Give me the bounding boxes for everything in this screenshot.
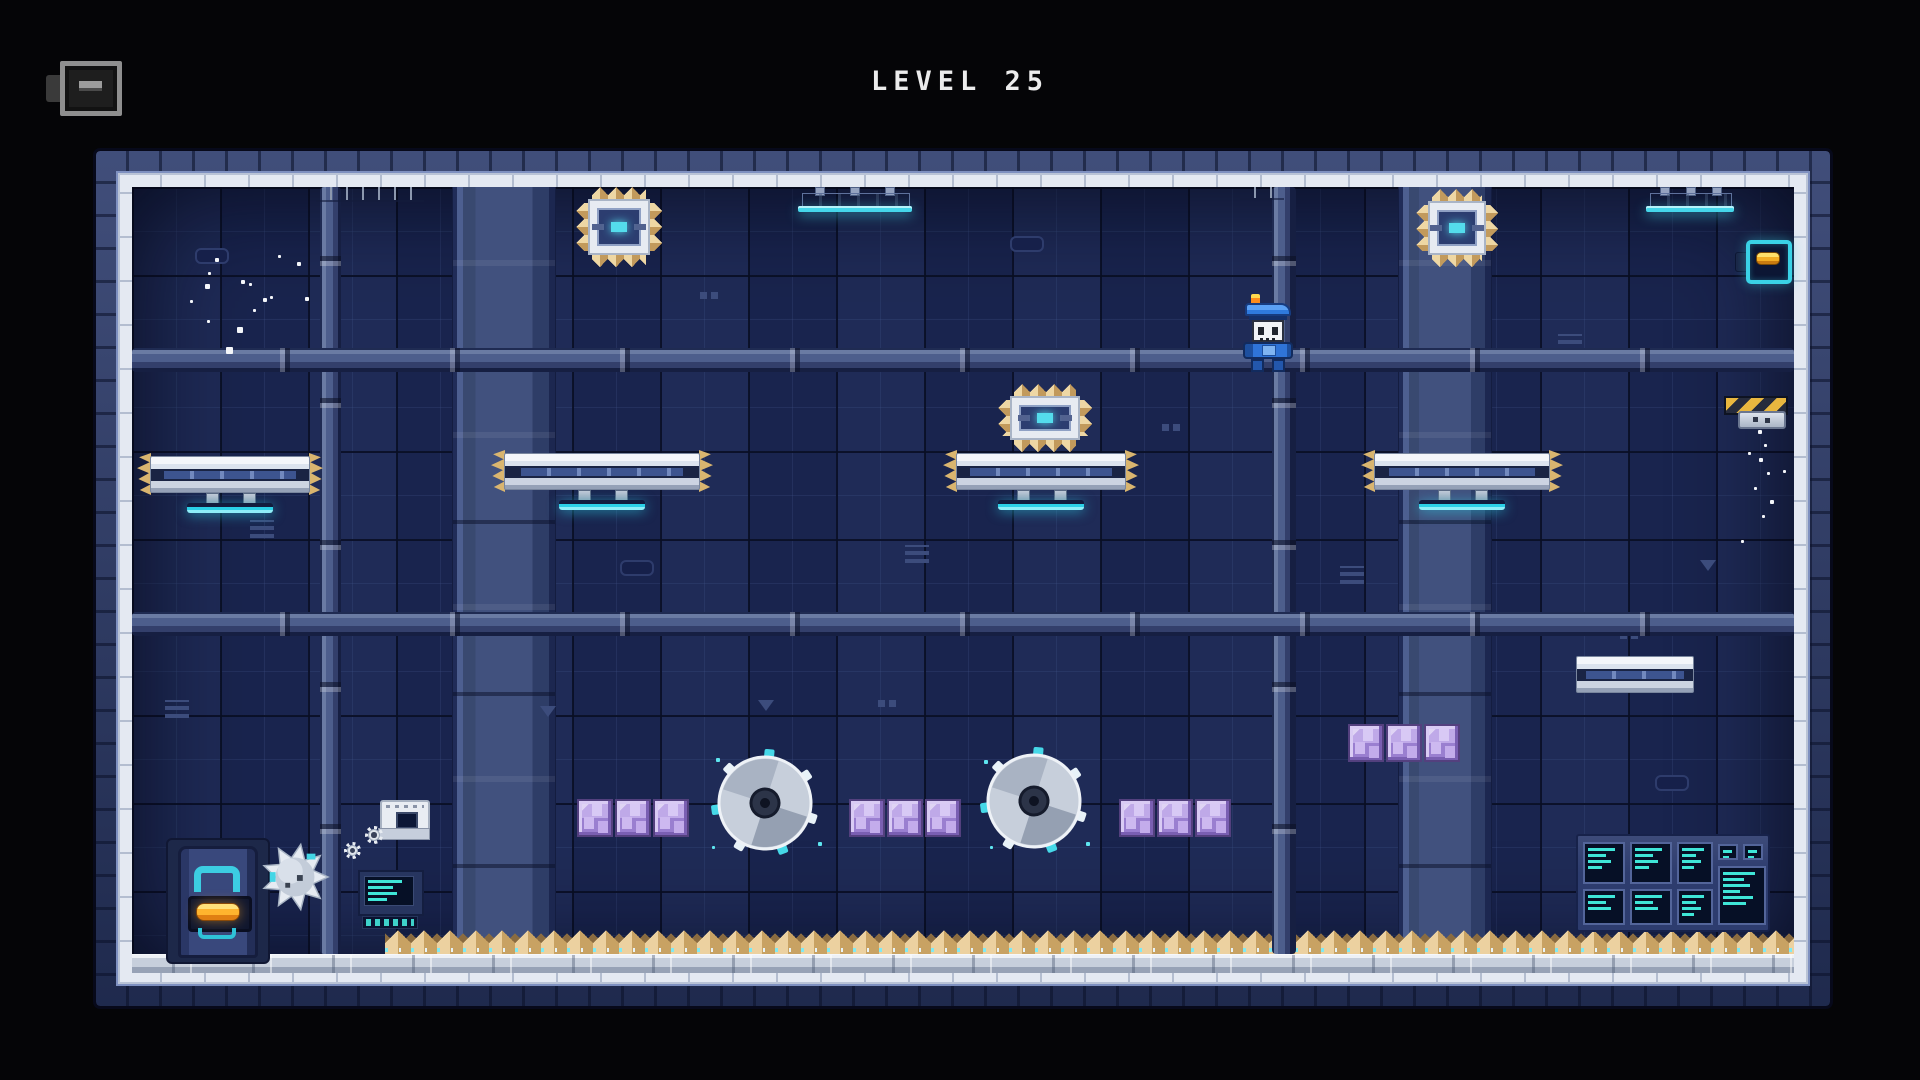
debris-particle (263, 298, 267, 302)
spike-block (588, 199, 650, 255)
wall-deco-dots (700, 292, 707, 299)
wall-deco-dots (1162, 424, 1169, 431)
console-text-line (1682, 866, 1694, 869)
console-text-line (1723, 896, 1753, 899)
game-viewport: LEVEL 25 (0, 0, 1920, 1080)
spark-particle (990, 846, 993, 849)
level-playfield (132, 187, 1794, 972)
crystal-block (577, 799, 613, 837)
pipe-horizontal (132, 348, 1794, 372)
player-character (1243, 294, 1295, 372)
spike-ball-enemy (259, 841, 331, 913)
console-text-line (1635, 854, 1653, 857)
console-text-line (1635, 901, 1653, 904)
platform (1576, 656, 1694, 693)
crystal-block (1424, 724, 1460, 762)
console-screen (1630, 889, 1672, 925)
spike-block (1010, 396, 1080, 440)
terminal-readout-strip (362, 916, 418, 929)
console-text-line (1588, 907, 1611, 910)
spark-particle (1086, 842, 1090, 846)
player-chest-panel (1262, 345, 1276, 356)
console-text-line (1682, 854, 1696, 857)
debris-particle (1770, 500, 1774, 504)
ceiling-rail (1240, 187, 1284, 198)
crystal-block (925, 799, 961, 837)
crystal-block (1157, 799, 1193, 837)
dispenser-screen (396, 812, 418, 829)
console-text-line (1682, 907, 1701, 910)
debris-particle (1767, 472, 1770, 475)
debris-particle (1759, 458, 1763, 462)
crystal-block (653, 799, 689, 837)
wall-deco-slot (195, 248, 229, 264)
debris-particle (253, 309, 256, 312)
spark-particle (716, 758, 720, 762)
debris-particle (1764, 444, 1767, 447)
console-text-line (1723, 850, 1732, 853)
console-text-line (1588, 860, 1611, 863)
wall-deco-vent (165, 700, 189, 718)
console-text-line (1682, 895, 1704, 898)
spike-block (1428, 201, 1486, 255)
spike-strip-left (1416, 205, 1428, 251)
debris-particle (241, 280, 245, 284)
debris-particle (1762, 515, 1765, 518)
spike-strip-bottom (592, 255, 646, 267)
debris-particle (1758, 430, 1762, 434)
spike-strip-bottom (1014, 440, 1076, 452)
console-text-line (1682, 901, 1696, 904)
crystal-block (615, 799, 651, 837)
battery-item (1746, 240, 1792, 284)
lamp-glow-strip (1646, 206, 1734, 212)
debris-particle (278, 255, 281, 258)
debris-particle (237, 327, 243, 333)
debris-particle (226, 347, 233, 354)
console-text-line (1635, 866, 1649, 869)
player-eye (1258, 327, 1264, 335)
saw-blade (711, 749, 819, 857)
spike-strip-top (592, 187, 646, 199)
crystal-block (887, 799, 923, 837)
wall-deco-slot (1010, 236, 1044, 252)
wall-deco-vent (1340, 566, 1364, 584)
spike-strip-left (998, 400, 1010, 436)
debris-particle (215, 258, 219, 262)
console-text-line (1588, 895, 1615, 898)
gear-projectile (344, 842, 361, 859)
spark-particle (712, 846, 715, 849)
wall-deco-vent (905, 545, 929, 563)
crystal-block (1195, 799, 1231, 837)
console-text-line (1682, 913, 1694, 916)
player-eye (1272, 327, 1278, 335)
console-text-line (1682, 860, 1701, 863)
battery-capsule (1756, 252, 1780, 265)
door-bottom-bracket (198, 928, 236, 939)
player-mouth (1260, 338, 1276, 341)
console-text-line (1635, 860, 1658, 863)
debris-particle (1748, 452, 1751, 455)
lamp-glow-strip (798, 206, 912, 212)
wall-deco-slot (620, 560, 654, 576)
console-text-line (1748, 856, 1754, 859)
door-handle (194, 866, 240, 892)
console-text-line (1723, 890, 1740, 893)
console-screen (1677, 842, 1713, 884)
console-text-line (1723, 902, 1746, 905)
crystal-block (1348, 724, 1384, 762)
console-text-line (1635, 848, 1662, 851)
player-cap (1245, 303, 1291, 316)
wall-deco-slot (1655, 775, 1689, 791)
debris-particle (207, 320, 210, 323)
ceiling-rail (316, 187, 424, 200)
wall-deco-dots (878, 700, 885, 707)
floor-walkway (132, 954, 1794, 973)
console-screen (1583, 889, 1625, 925)
platform (956, 453, 1126, 490)
platform (1374, 453, 1550, 490)
console-text-line (1588, 848, 1615, 851)
debris-particle (249, 283, 252, 286)
terminal-text-line (368, 880, 402, 883)
platform-glow-base (998, 500, 1084, 510)
debris-particle (205, 284, 210, 289)
debris-particle (297, 262, 301, 266)
console-screen (1718, 844, 1738, 860)
crystal-block (849, 799, 885, 837)
console-text-line (1748, 850, 1757, 853)
hazard-dripper (1738, 411, 1786, 429)
dispenser-tray (378, 828, 430, 840)
debris-particle (1741, 540, 1744, 543)
pipe-vertical (320, 187, 341, 954)
console-screen (1718, 866, 1766, 925)
platform (504, 453, 700, 490)
debris-particle (1754, 487, 1757, 490)
terminal-text-line (368, 898, 387, 901)
platform-glow-base (187, 503, 273, 513)
ceiling-lamp (1650, 187, 1730, 213)
console-screen (1630, 842, 1672, 884)
platform (150, 456, 310, 493)
console-text-line (1635, 907, 1658, 910)
player-leg (1272, 359, 1285, 372)
debris-particle (1783, 470, 1786, 473)
spark-particle (818, 842, 822, 846)
pipe-horizontal (132, 612, 1794, 636)
floor-spike-dots (385, 948, 1794, 952)
console-text-line (1588, 866, 1602, 869)
crystal-block (1386, 724, 1422, 762)
console-text-line (1723, 872, 1755, 875)
platform-glow-base (559, 500, 645, 510)
debris-particle (208, 272, 211, 275)
saw-blade (980, 747, 1088, 855)
console-text-line (1723, 856, 1729, 859)
console-text-line (1635, 895, 1662, 898)
console-screen (1743, 844, 1763, 860)
debris-particle (190, 300, 193, 303)
terminal-screen (364, 876, 414, 906)
crystal-block (1119, 799, 1155, 837)
spike-strip-left (576, 203, 588, 251)
wall-column (1398, 187, 1492, 954)
terminal-text-line (368, 892, 397, 895)
spike-strip-right (1080, 400, 1092, 436)
terminal-text-line (368, 886, 393, 889)
platform-glow-base (1419, 500, 1505, 510)
spike-strip-bottom (1432, 255, 1482, 267)
door-orange-light (196, 903, 240, 921)
console-text-line (1682, 848, 1704, 851)
console-text-line (1588, 901, 1606, 904)
wall-column (452, 187, 556, 954)
ceiling-lamp (802, 187, 908, 213)
console-screen (1677, 889, 1713, 925)
spike-strip-top (1432, 189, 1482, 201)
debris-particle (305, 297, 309, 301)
console-text-line (1723, 884, 1750, 887)
level-title: LEVEL 25 (0, 66, 1920, 97)
gear-projectile (365, 826, 383, 844)
console-screen (1583, 842, 1625, 884)
spark-particle (984, 760, 988, 764)
spike-strip-right (1486, 205, 1498, 251)
debris-particle (270, 296, 273, 299)
console-text-line (1588, 854, 1606, 857)
wall-deco-vent (250, 520, 274, 538)
console-text-line (1723, 878, 1744, 881)
player-leg (1251, 359, 1264, 372)
spike-strip-top (1014, 384, 1076, 396)
spike-strip-right (650, 203, 662, 251)
